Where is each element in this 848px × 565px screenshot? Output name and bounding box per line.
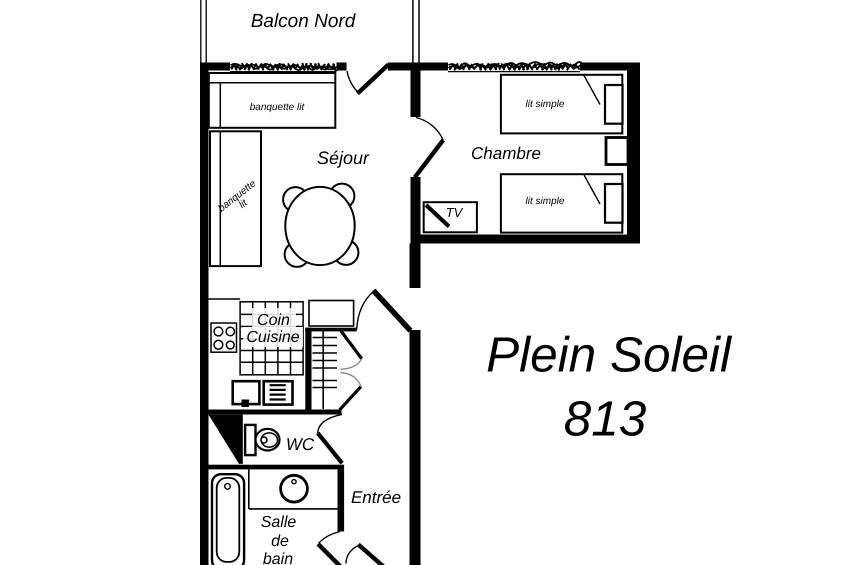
- svg-text:TV: TV: [446, 205, 464, 220]
- svg-text:Chambre: Chambre: [471, 144, 541, 163]
- svg-text:Séjour: Séjour: [317, 148, 370, 168]
- svg-text:Cuisine: Cuisine: [246, 329, 299, 346]
- svg-text:Balcon Nord: Balcon Nord: [251, 11, 357, 32]
- svg-text:lit simple: lit simple: [526, 99, 565, 110]
- svg-text:banquette lit: banquette lit: [250, 102, 306, 113]
- svg-text:bain: bain: [263, 551, 293, 565]
- svg-text:de: de: [271, 533, 289, 550]
- svg-text:lit simple: lit simple: [526, 196, 565, 207]
- svg-text:813: 813: [564, 392, 647, 447]
- svg-text:WC: WC: [286, 435, 315, 454]
- svg-text:Salle: Salle: [261, 514, 297, 531]
- svg-text:Coin: Coin: [257, 312, 290, 329]
- svg-text:Entrée: Entrée: [351, 488, 401, 507]
- svg-text:Plein Soleil: Plein Soleil: [486, 328, 733, 383]
